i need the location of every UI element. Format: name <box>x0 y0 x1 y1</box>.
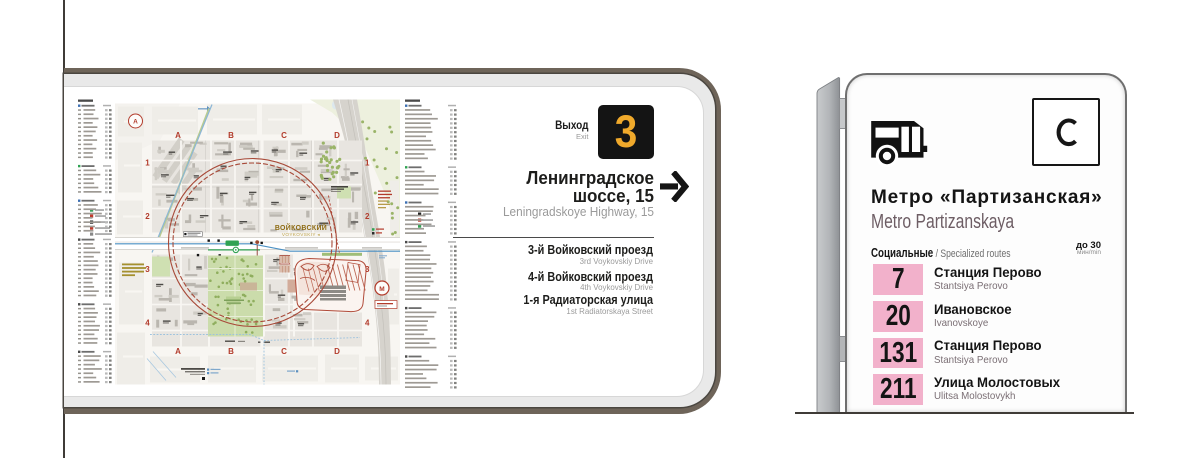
svg-text:B: B <box>228 130 234 139</box>
svg-text:B: B <box>228 347 234 356</box>
svg-text:2: 2 <box>365 211 370 220</box>
svg-text:A: A <box>175 130 181 139</box>
svg-text:VOYKOVSKIY ◂: VOYKOVSKIY ◂ <box>282 231 321 236</box>
svg-text:1: 1 <box>145 158 150 167</box>
svg-text:D: D <box>334 130 340 139</box>
svg-text:4: 4 <box>365 318 370 327</box>
svg-text:C: C <box>281 130 287 139</box>
svg-text:D: D <box>334 347 340 356</box>
svg-text:М: М <box>379 285 384 292</box>
svg-text:3: 3 <box>145 265 150 274</box>
svg-text:ВОЙКОВСКИЙ: ВОЙКОВСКИЙ <box>275 223 327 232</box>
svg-text:1: 1 <box>365 158 370 167</box>
svg-text:А: А <box>133 118 138 125</box>
svg-text:C: C <box>281 347 287 356</box>
svg-text:A: A <box>175 347 181 356</box>
svg-text:3: 3 <box>365 265 370 274</box>
svg-text:2: 2 <box>145 211 150 220</box>
svg-text:4: 4 <box>145 318 150 327</box>
